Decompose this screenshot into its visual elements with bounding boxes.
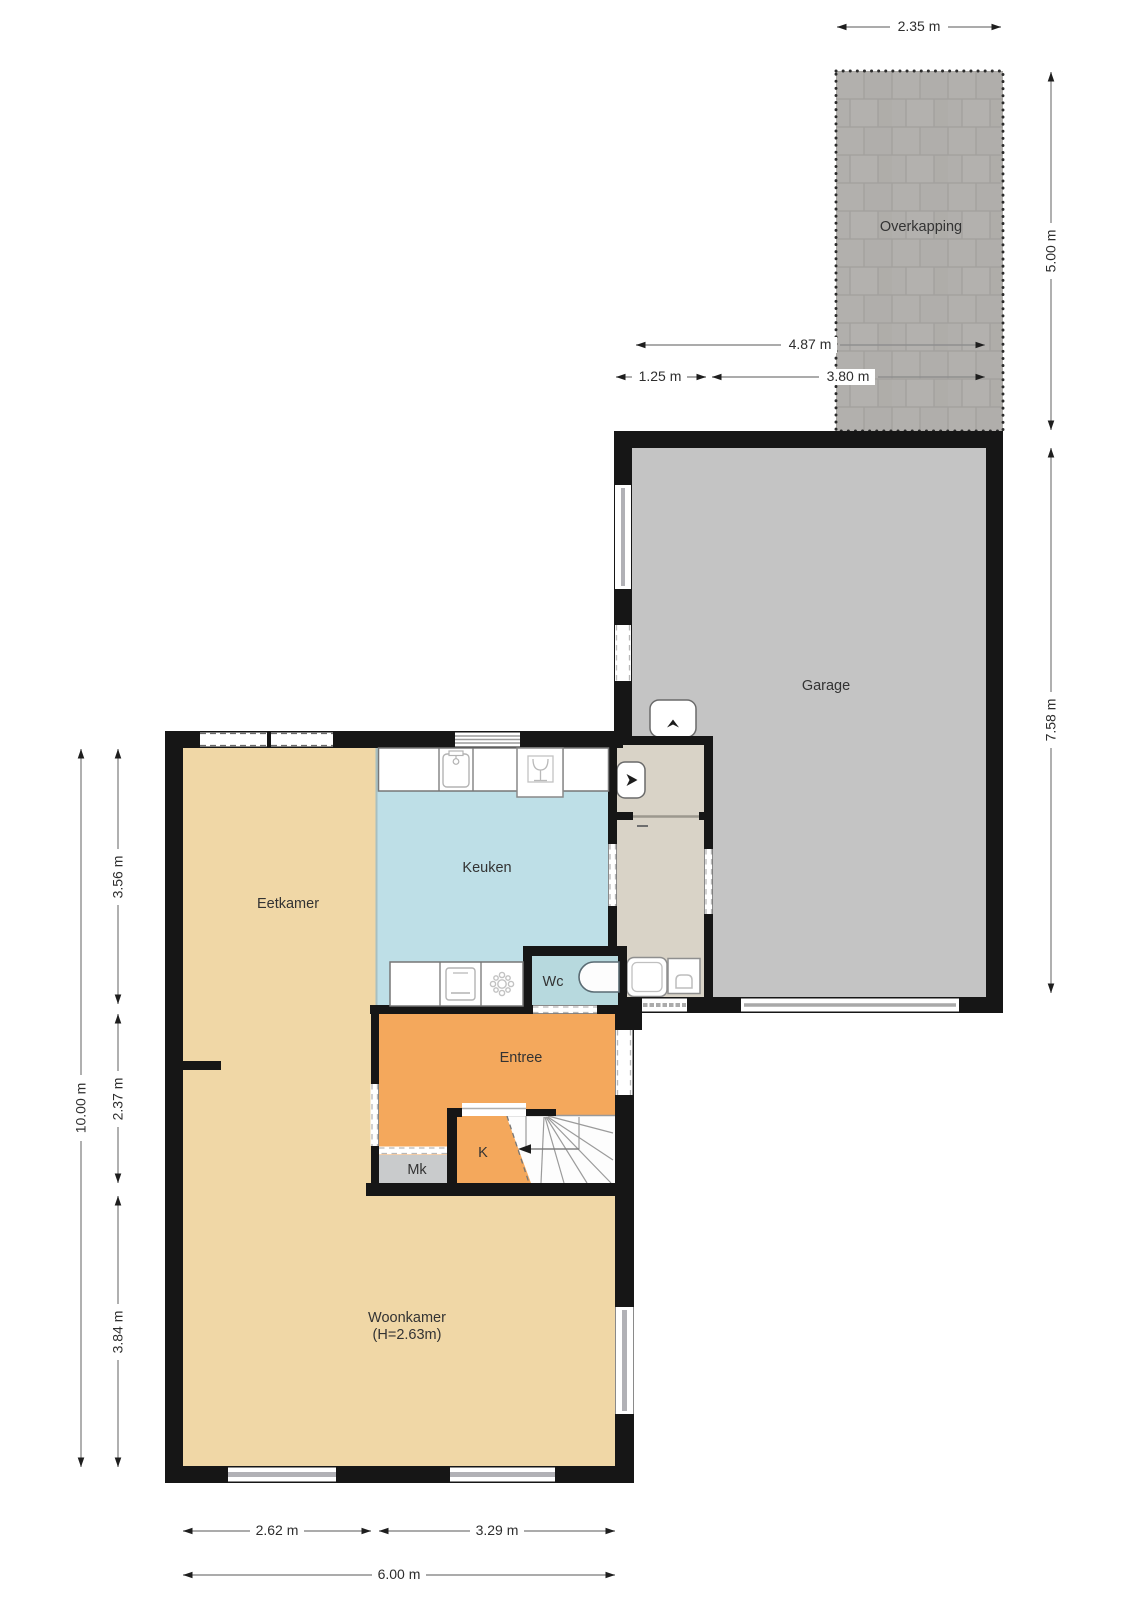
svg-text:4.87 m: 4.87 m [789,336,832,352]
svg-text:6.00 m: 6.00 m [378,1566,421,1582]
svg-text:7.58 m: 7.58 m [1043,699,1059,742]
svg-text:Garage: Garage [802,678,850,694]
svg-text:2.35 m: 2.35 m [898,18,941,34]
svg-text:1.25 m: 1.25 m [639,368,682,384]
svg-text:2.62 m: 2.62 m [256,1522,299,1538]
svg-text:Entree: Entree [500,1050,543,1066]
svg-text:Mk: Mk [407,1162,427,1178]
svg-text:3.29 m: 3.29 m [476,1522,519,1538]
svg-text:2.37 m: 2.37 m [110,1078,126,1121]
svg-text:Wc: Wc [543,974,564,990]
svg-text:Overkapping: Overkapping [880,219,962,235]
svg-text:5.00 m: 5.00 m [1043,230,1059,273]
svg-text:3.84 m: 3.84 m [110,1311,126,1354]
svg-text:(H=2.63m): (H=2.63m) [373,1327,442,1343]
svg-text:10.00 m: 10.00 m [73,1083,89,1134]
svg-text:Eetkamer: Eetkamer [257,896,319,912]
svg-text:K: K [478,1145,488,1161]
svg-text:3.80 m: 3.80 m [827,368,870,384]
svg-text:3.56 m: 3.56 m [110,856,126,899]
svg-text:Woonkamer: Woonkamer [368,1310,446,1326]
svg-text:Keuken: Keuken [462,860,511,876]
